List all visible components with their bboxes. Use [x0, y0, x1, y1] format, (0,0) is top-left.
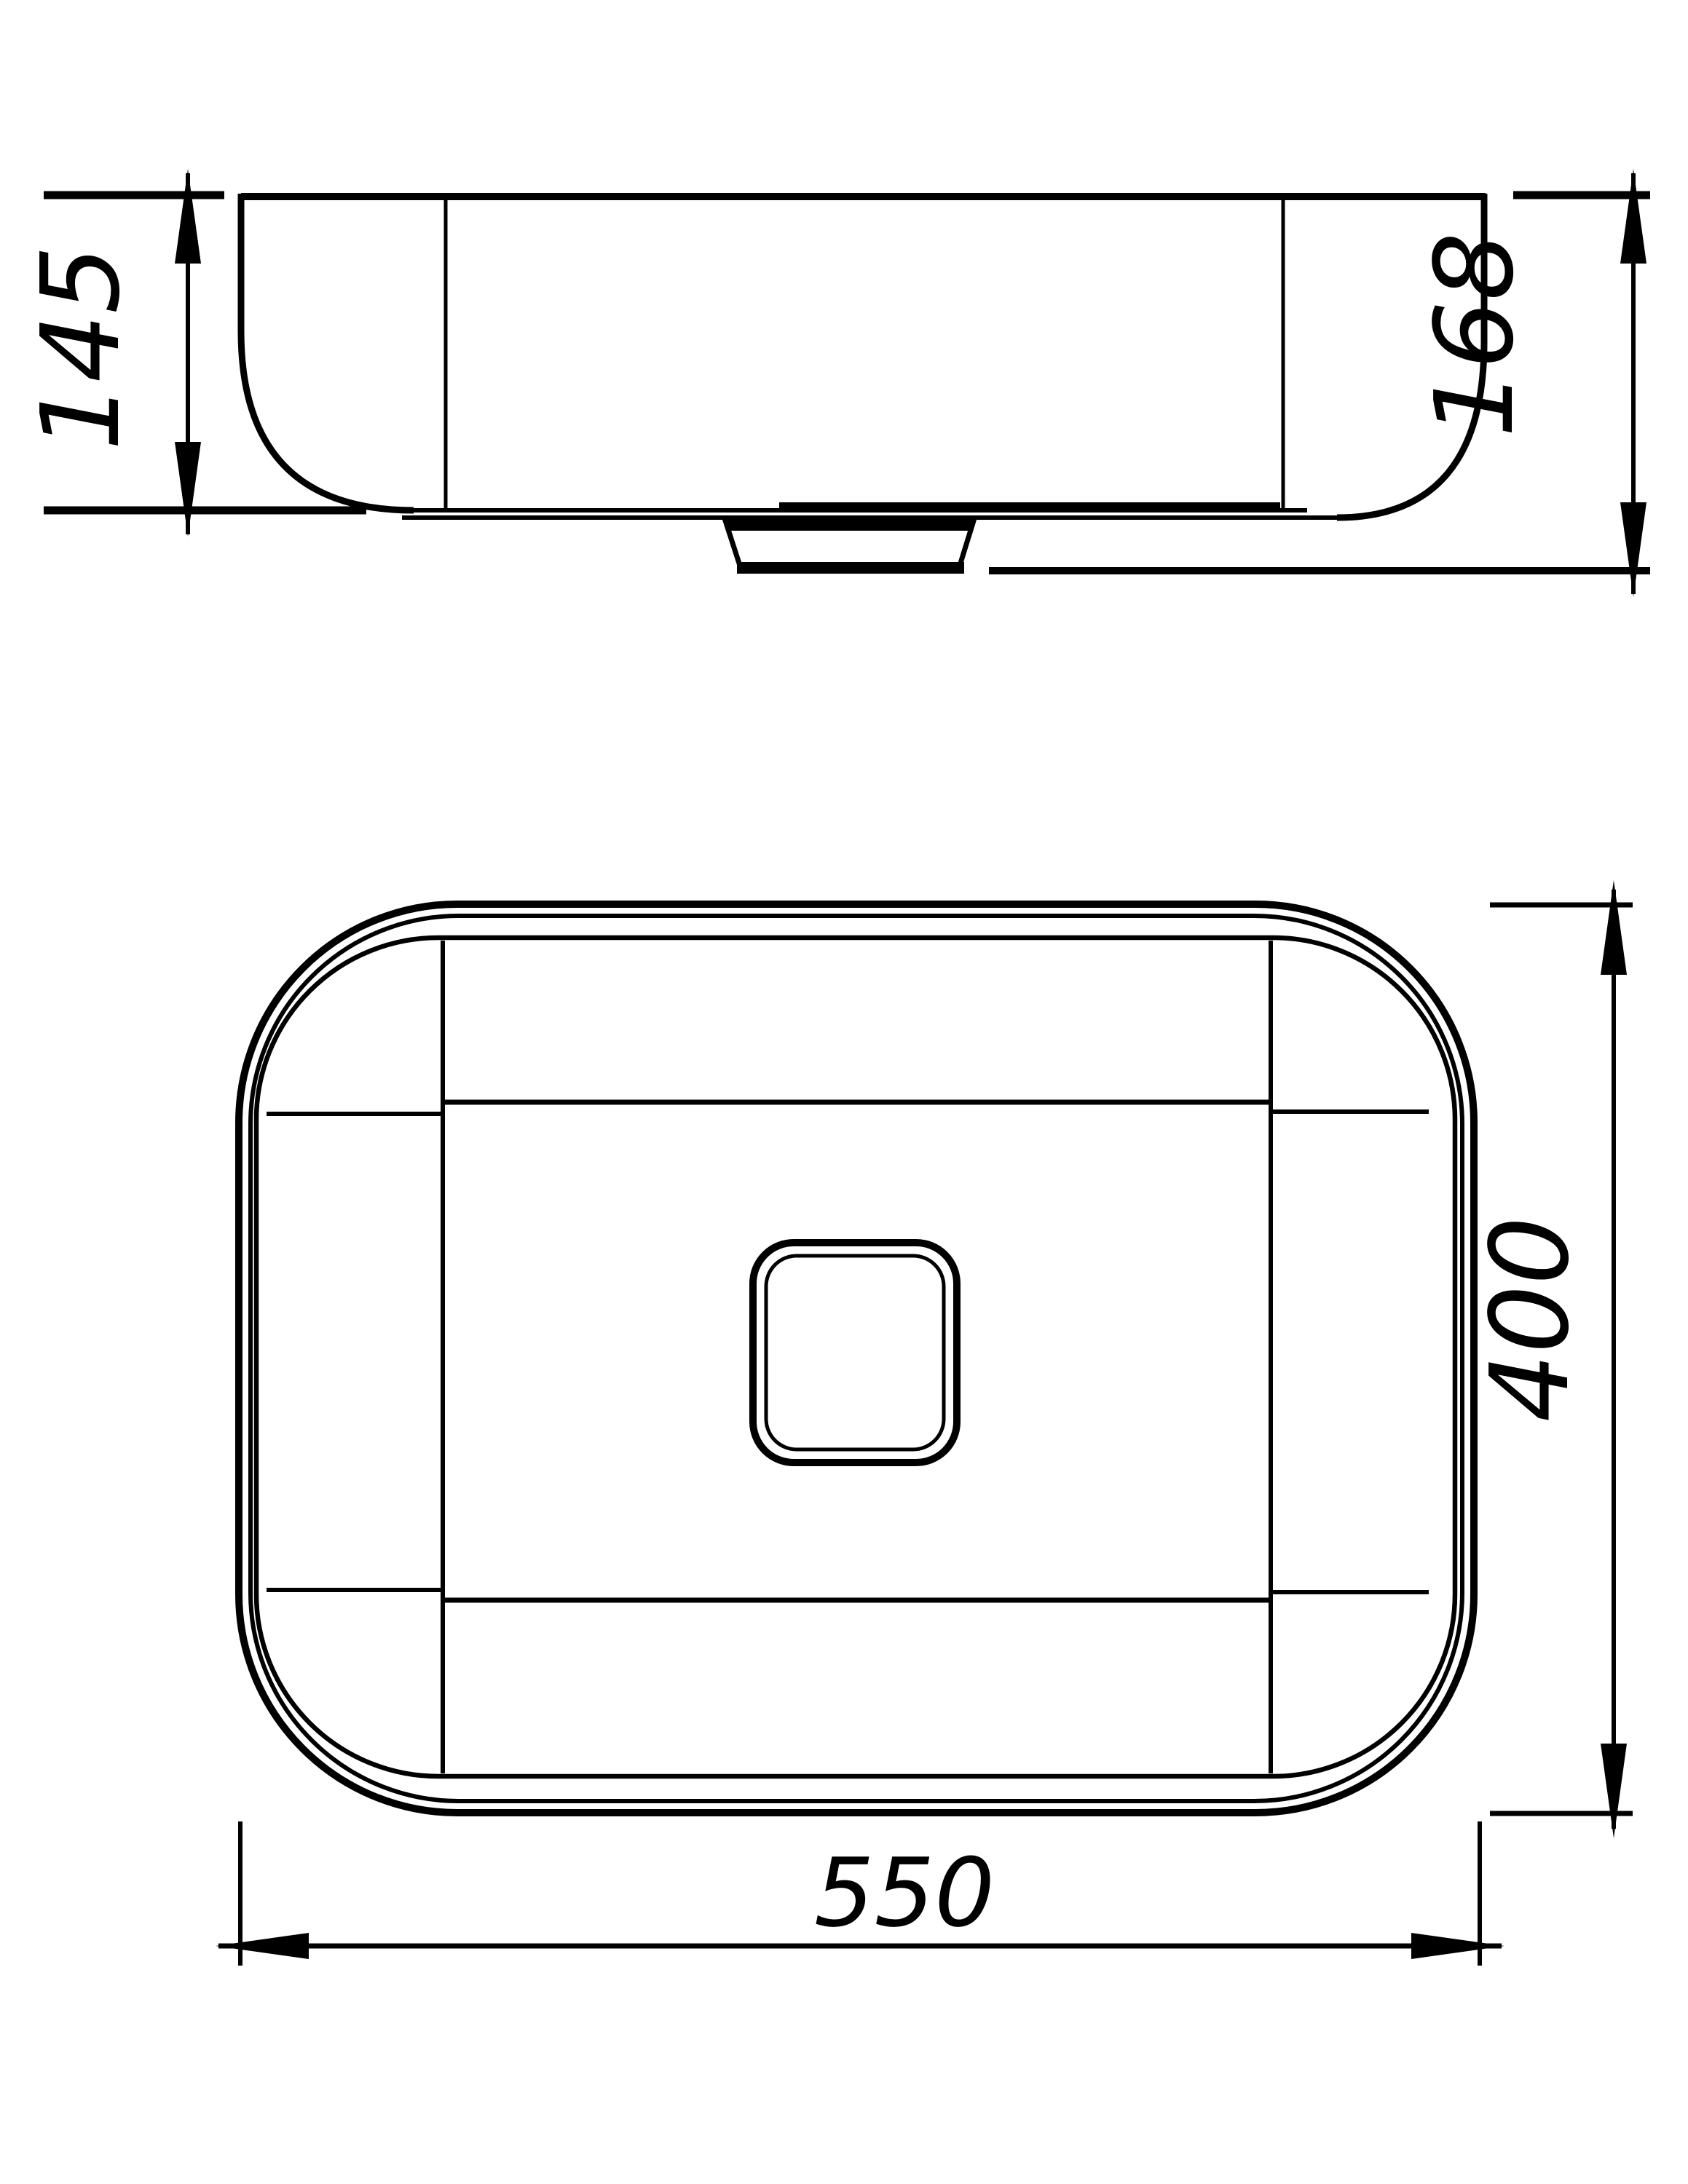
drain-outer-edge — [753, 1243, 957, 1463]
plan-outer-edge-inner-line — [251, 916, 1462, 1801]
arrowhead-down-icon — [1601, 1744, 1627, 1838]
side-view: 145 168 — [18, 169, 1650, 597]
dim-label-overall-height: 168 — [1412, 232, 1537, 438]
dim-label-width: 550 — [814, 1837, 995, 1948]
drain-plan — [753, 1243, 957, 1463]
drain-side — [723, 518, 976, 574]
dimension-400: 400 — [1467, 880, 1633, 1838]
basin-facet-lines — [267, 941, 1429, 1773]
plan-view: 400 550 — [216, 880, 1633, 1966]
arrowhead-down-icon — [175, 442, 201, 537]
drawing-page: 145 168 — [0, 0, 1688, 2184]
plan-outer-edge — [239, 904, 1474, 1813]
drain-bottom-band — [737, 562, 964, 574]
dimension-550: 550 — [216, 1821, 1504, 1966]
dimension-168: 168 — [989, 169, 1650, 597]
arrowhead-down-icon — [1620, 502, 1646, 597]
drain-inner-edge — [766, 1256, 944, 1449]
arrowhead-up-icon — [175, 169, 201, 264]
dim-label-basin-height: 145 — [18, 245, 143, 451]
arrowhead-up-icon — [1620, 169, 1646, 264]
dimension-145: 145 — [18, 169, 366, 537]
dim-label-depth: 400 — [1467, 1216, 1593, 1423]
washbasin-dimension-drawing: 145 168 — [0, 0, 1688, 2184]
arrowhead-right-icon — [1411, 1933, 1504, 1959]
arrowhead-left-icon — [216, 1933, 309, 1959]
drain-top-band — [723, 518, 976, 531]
arrowhead-up-icon — [1601, 880, 1627, 975]
side-left-profile — [241, 194, 414, 510]
plan-basin-opening — [256, 938, 1455, 1776]
